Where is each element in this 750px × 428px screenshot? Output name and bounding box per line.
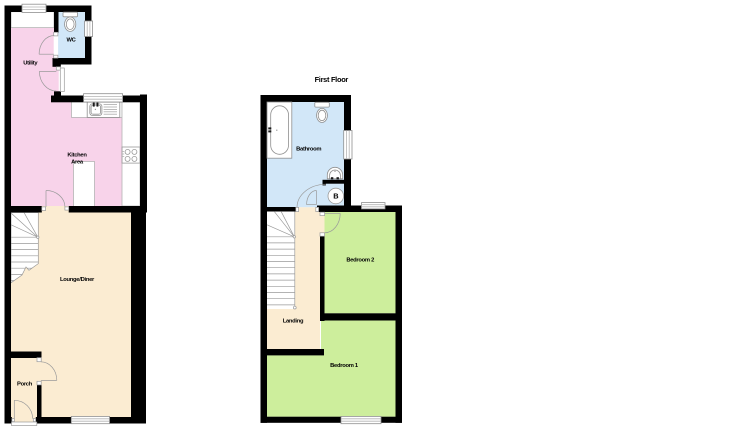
svg-text:B: B <box>333 192 338 201</box>
svg-text:WC: WC <box>66 38 76 44</box>
svg-text:Porch: Porch <box>17 382 33 388</box>
svg-text:Bathroom: Bathroom <box>296 147 321 153</box>
svg-text:Landing: Landing <box>283 319 304 325</box>
svg-text:Kitchen: Kitchen <box>67 153 87 159</box>
svg-text:Bedroom 2: Bedroom 2 <box>346 258 374 264</box>
svg-text:First Floor: First Floor <box>315 75 349 84</box>
svg-text:Area: Area <box>71 160 84 166</box>
svg-text:Bedroom 1: Bedroom 1 <box>330 363 359 369</box>
svg-text:Utility: Utility <box>23 61 38 67</box>
svg-text:Lounge/Diner: Lounge/Diner <box>60 277 95 283</box>
